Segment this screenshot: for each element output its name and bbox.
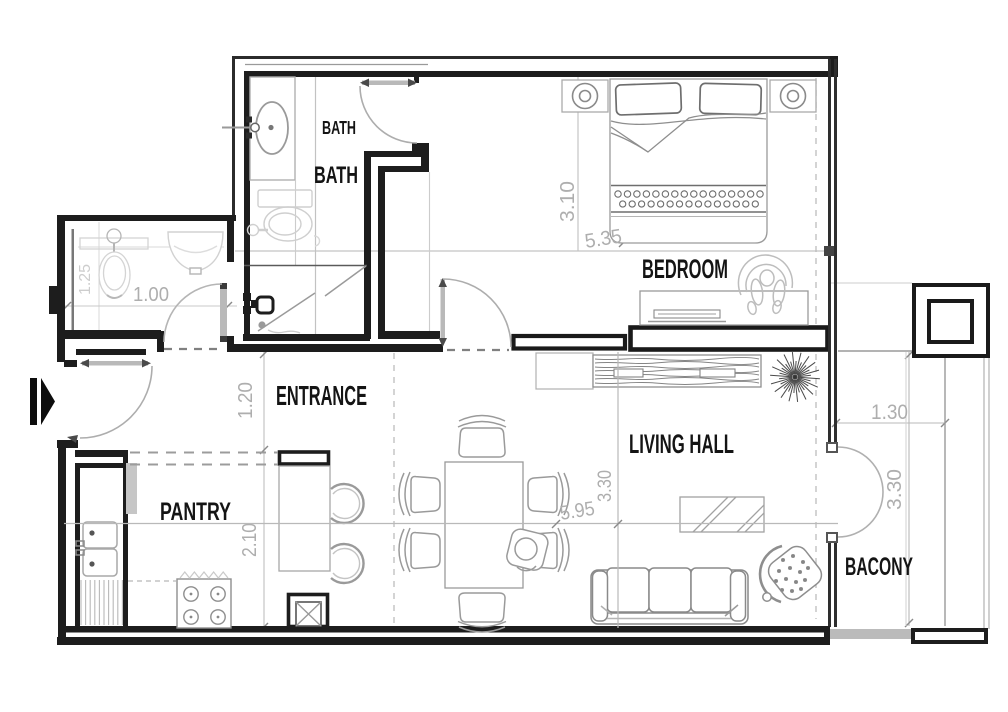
- svg-text:1.20: 1.20: [235, 382, 257, 419]
- svg-text:2.10: 2.10: [239, 523, 261, 557]
- svg-text:BEDROOM: BEDROOM: [642, 254, 728, 284]
- svg-text:PANTRY: PANTRY: [160, 498, 231, 526]
- svg-text:1.00: 1.00: [133, 284, 169, 306]
- svg-text:ENTRANCE: ENTRANCE: [276, 380, 367, 411]
- svg-text:1.25: 1.25: [77, 264, 94, 295]
- svg-text:BATH: BATH: [314, 162, 358, 189]
- svg-text:BATH: BATH: [322, 118, 356, 138]
- svg-text:BACONY: BACONY: [845, 553, 913, 581]
- svg-text:3.30: 3.30: [595, 470, 616, 502]
- svg-text:3.10: 3.10: [557, 181, 579, 222]
- svg-text:LIVING HALL: LIVING HALL: [629, 429, 734, 459]
- svg-text:3.30: 3.30: [884, 469, 906, 510]
- svg-text:1.30: 1.30: [871, 401, 908, 424]
